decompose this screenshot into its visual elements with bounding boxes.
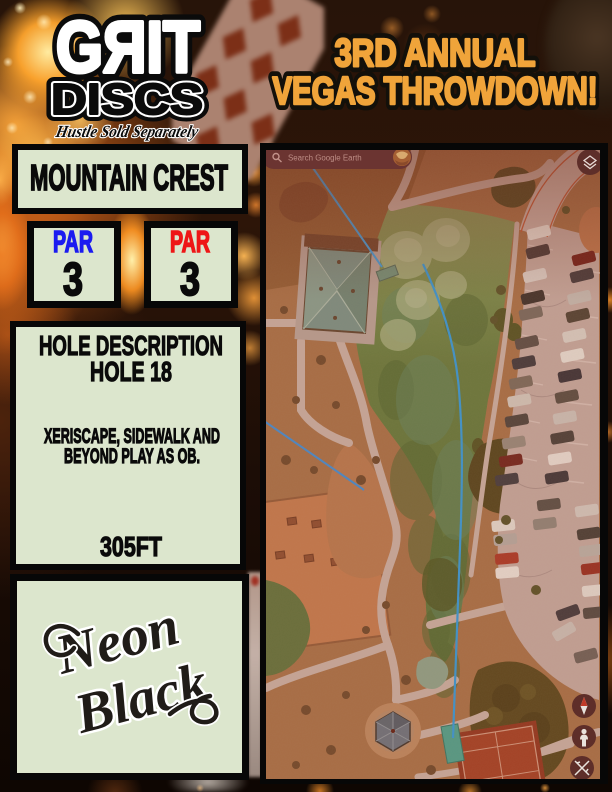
- svg-text:Hustle Sold Separately: Hustle Sold Separately: [53, 122, 200, 141]
- svg-text:HOLE 18: HOLE 18: [90, 356, 172, 387]
- svg-text:BEYOND PLAY AS OB.: BEYOND PLAY AS OB.: [64, 445, 200, 468]
- svg-text:3: 3: [180, 253, 200, 305]
- svg-text:DISCS: DISCS: [51, 75, 203, 124]
- svg-text:VEGAS THROWDOWN!: VEGAS THROWDOWN!: [273, 70, 598, 113]
- svg-text:MOUNTAIN CREST: MOUNTAIN CREST: [30, 157, 228, 198]
- svg-text:Search Google Earth: Search Google Earth: [288, 154, 362, 163]
- svg-text:305FT: 305FT: [100, 531, 162, 562]
- svg-text:3: 3: [63, 253, 83, 305]
- svg-text:3RD ANNUAL: 3RD ANNUAL: [335, 32, 536, 75]
